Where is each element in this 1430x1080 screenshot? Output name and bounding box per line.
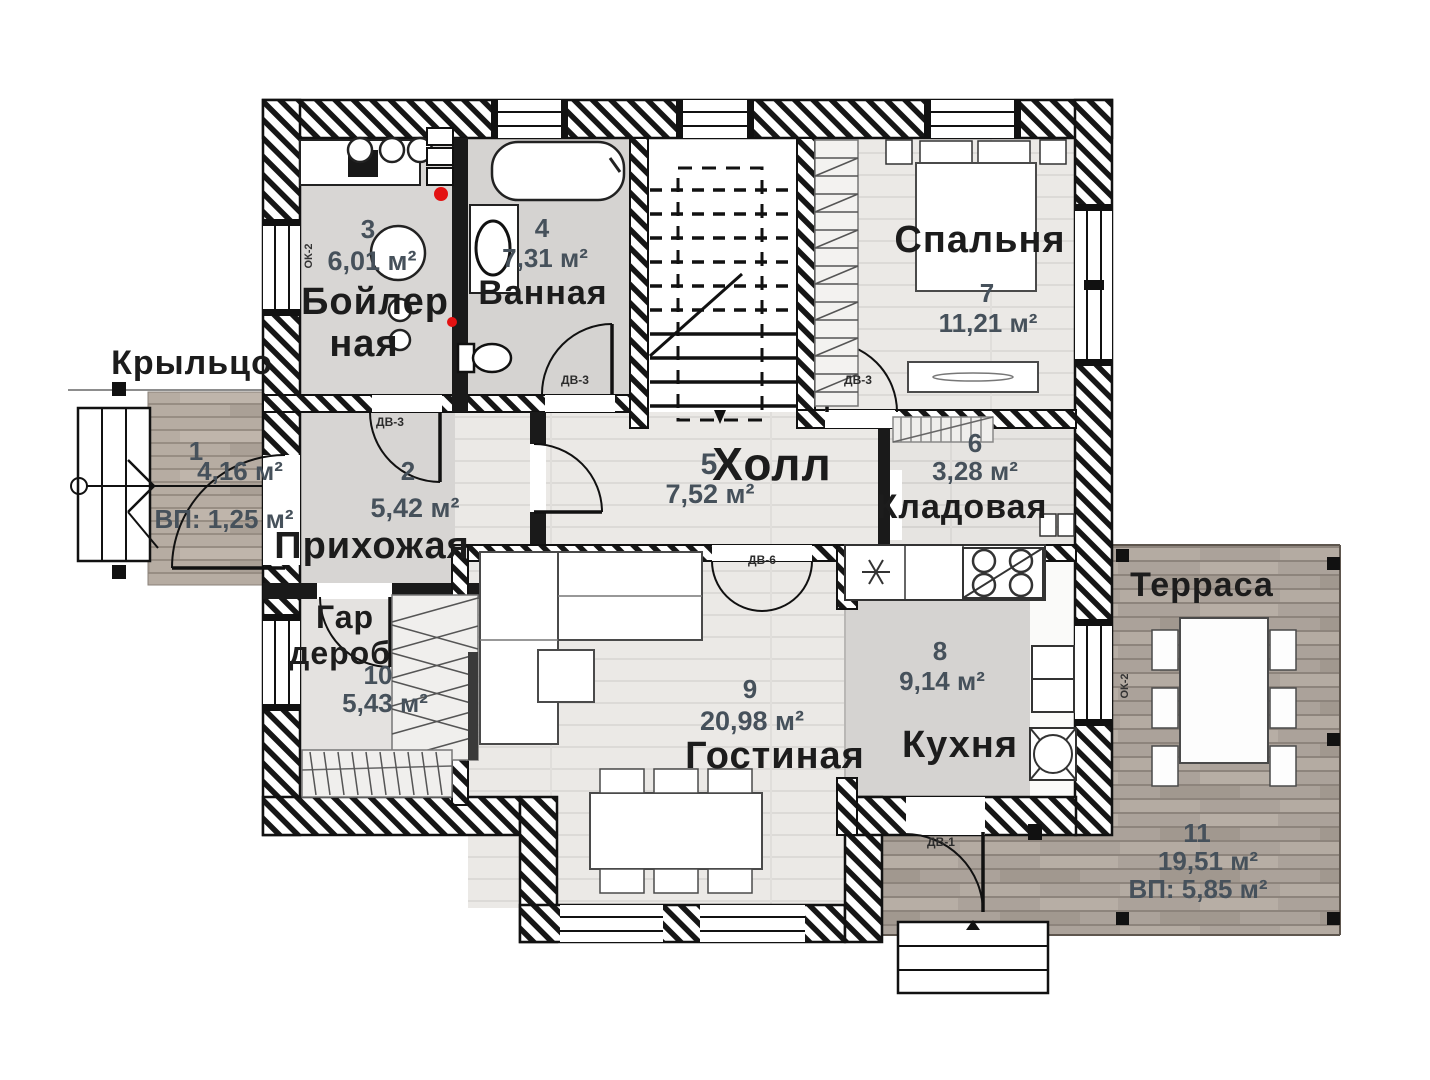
hall-area: 7,52 м² [665,479,754,509]
door-code-terrace: ДВ-1 [927,835,955,849]
terrace-fastener-2 [1327,557,1340,570]
terrace-chair-r3 [1270,746,1296,786]
terrace-name: Терраса [1130,566,1274,604]
bedroom-number: 7 [980,278,994,308]
stove [963,548,1043,598]
floor-plan-canvas: Крыльцо 1 4,16 м² ВП: 1,25 м² Бойлер ная… [0,0,1430,1080]
porch-area: 4,16 м² [197,456,283,486]
kitchen-area: 9,14 м² [899,666,985,696]
terrace-fastener-4 [1327,912,1340,925]
wall-stairs-bedroom [797,138,815,428]
window-code-east: ОК-2 [1119,673,1131,698]
kitchen-floor-gray [845,600,1030,798]
dresser [908,362,1038,392]
terrace-chair-l3 [1152,746,1178,786]
hallway-name: Прихожая [274,525,470,567]
terrace-fastener-1 [1116,549,1129,562]
porch-title: Крыльцо [111,344,273,382]
terrace-table [1180,618,1268,763]
bathroom-number: 4 [535,213,550,243]
living-name: Гостиная [685,735,865,777]
opening-boiler-door [372,395,442,412]
wall-south-west [263,797,520,835]
wardrobe-number: 10 [364,660,393,690]
opening-bath-door [545,395,615,412]
boiler-equipment-circle-2 [380,138,404,162]
window-north-bath [491,100,568,138]
coffee-table [538,650,594,702]
living-area: 20,98 м² [700,706,804,736]
hallway-area: 5,42 м² [370,493,459,523]
living-number: 9 [743,674,757,704]
boiler-name-line1: Бойлер [301,281,449,323]
window-bay-left [560,905,663,942]
pillow-left [920,141,972,163]
window-east-bedroom [1075,204,1112,366]
terrace-chair-r1 [1270,630,1296,670]
terrace-chair-r2 [1270,688,1296,728]
porch-fastener-top [112,382,126,396]
electrical-panel-2 [427,148,453,165]
electrical-panel-1 [427,128,453,145]
window-east-kitchen [1075,619,1112,726]
pillow-right [978,141,1030,163]
opening-terrace-door [906,797,985,835]
boiler-number: 3 [361,214,375,244]
porch-steps [78,408,150,561]
porch-vp: ВП: 1,25 м² [154,504,293,534]
storage-number: 6 [968,428,982,458]
toilet-tank [458,344,474,372]
kitchen-name: Кухня [902,724,1018,766]
floor-plan-svg: Крыльцо 1 4,16 м² ВП: 1,25 м² Бойлер ная… [0,0,1430,1080]
door-stop-block [1028,824,1042,840]
terrace-fastener-5 [1116,912,1129,925]
electrical-panel-3 [427,168,453,185]
tv-console [468,652,478,760]
dining-table [590,793,762,869]
terrace-steps [898,920,1048,993]
dining-chair-b3 [708,869,752,893]
kitchen-number: 8 [933,636,947,666]
opening-wardrobe-door [317,583,392,599]
boiler-equipment-circle-1 [348,138,372,162]
nightstand-left [886,140,912,164]
opening-bedroom-door [825,410,895,428]
stair-ladder-shelf [815,140,858,406]
door-code-bath: ДВ-3 [561,373,589,387]
window-north-stairs [676,100,754,138]
dining-chair-t1 [600,769,644,793]
door-code-boiler: ДВ-3 [376,415,404,429]
window-north-bedroom [924,100,1021,138]
terrace-vp: ВП: 5,85 м² [1128,874,1267,904]
wardrobe-shelf-right [392,595,478,760]
storage-unit-2 [1058,514,1074,536]
window-west-boiler [263,219,300,316]
hallway-number: 2 [401,456,415,486]
terrace-area: 19,51 м² [1158,846,1259,876]
bedroom-area: 11,21 м² [939,308,1038,338]
storage-area: 3,28 м² [932,456,1018,486]
terrace-number: 11 [1183,818,1211,848]
stair-floor [648,140,798,428]
red-marker-boiler [434,187,448,201]
wall-kitchen-stub-south [837,778,857,835]
terrace-fastener-3 [1327,733,1340,746]
kitchen-fridge [1032,646,1074,712]
dining-chair-b1 [600,869,644,893]
window-bay-right [700,905,805,942]
porch-fastener-bottom [112,565,126,579]
bedroom-name: Спальня [894,219,1065,261]
bathroom-name: Ванная [478,274,607,312]
kitchen-sink [1030,728,1076,780]
boiler-name-line2: ная [329,323,398,365]
opening-hallway-hall-door [530,444,546,512]
nightstand-right [1040,140,1066,164]
sofa-chaise [480,552,558,744]
dining-chair-b2 [654,869,698,893]
storage-name: Кладовая [877,488,1048,526]
boiler-area: 6,01 м² [327,246,416,276]
wardrobe-area: 5,43 м² [342,688,428,718]
wall-bath-stairs [630,138,648,428]
terrace-chair-l2 [1152,688,1178,728]
window-code-west: ОК-2 [303,243,315,268]
door-code-double: ДВ-6 [748,553,776,567]
terrace-chair-l1 [1152,630,1178,670]
bathroom-area: 7,31 м² [502,243,588,273]
bathtub [492,142,624,200]
door-code-bedroom: ДВ-3 [844,373,872,387]
wardrobe-hanger-rail [302,750,452,797]
toilet-bowl [473,344,511,372]
wardrobe-name-line1: Гар [316,599,374,635]
